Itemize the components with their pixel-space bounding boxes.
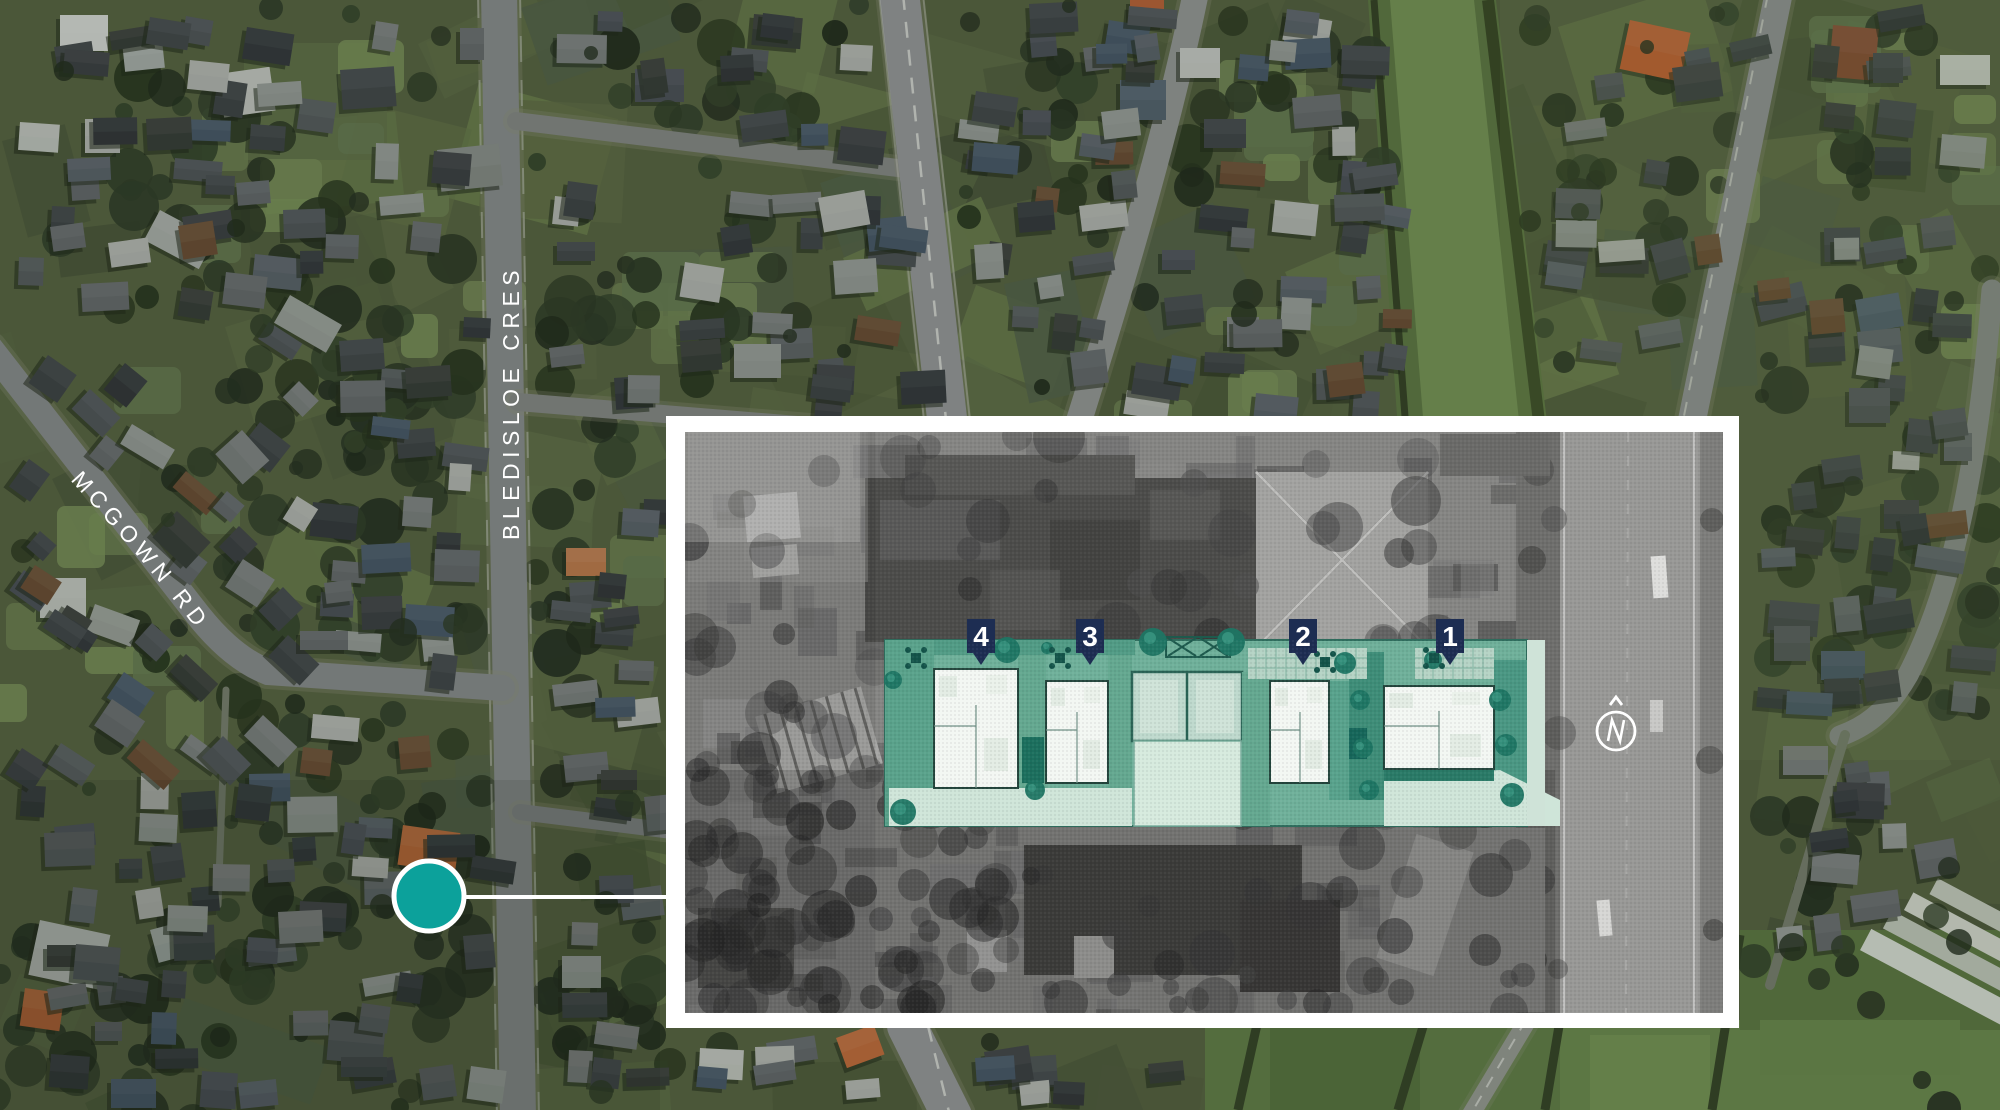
svg-text:BLEDISLOE CRES: BLEDISLOE CRES [498, 265, 524, 540]
